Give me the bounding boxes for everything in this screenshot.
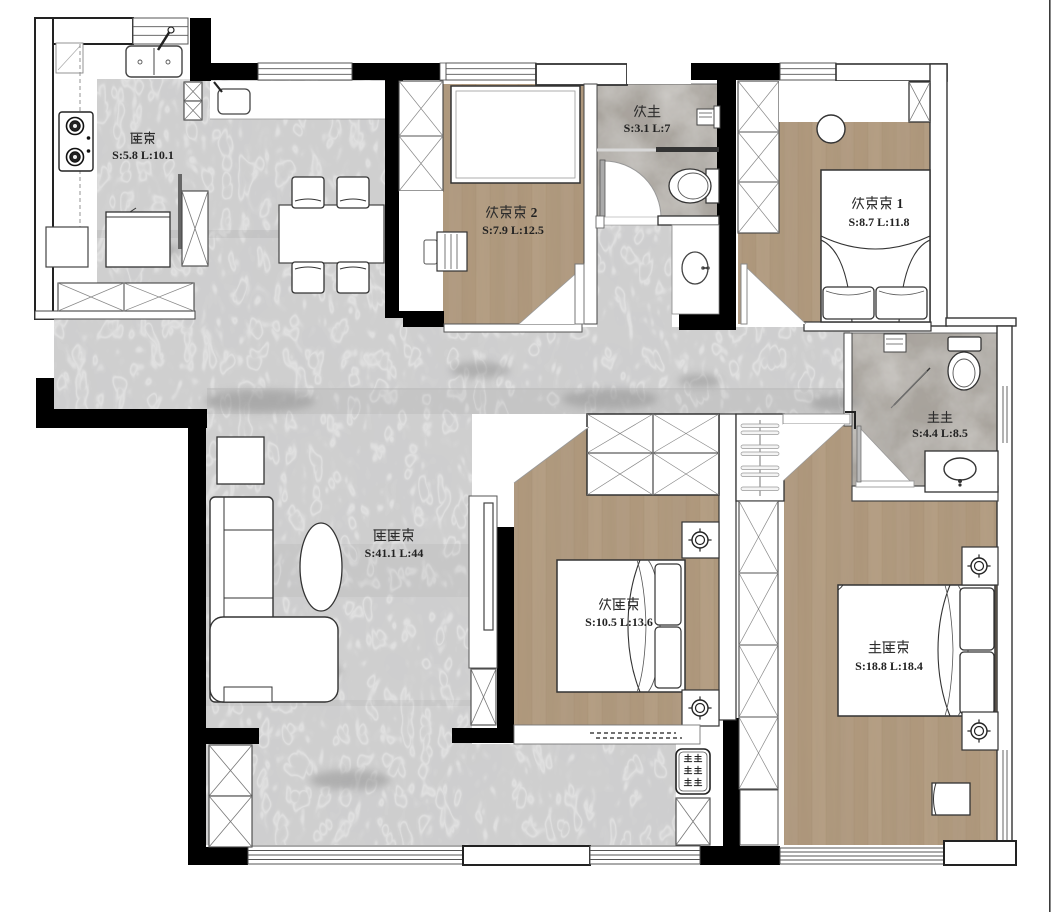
svg-text:S:3.1 L:7: S:3.1 L:7 [624, 121, 671, 135]
svg-text:S:41.1 L:44: S:41.1 L:44 [365, 546, 424, 560]
svg-text:S:7.9 L:12.5: S:7.9 L:12.5 [482, 223, 544, 237]
svg-text:2: 2 [531, 205, 538, 220]
svg-text:S:5.8 L:10.1: S:5.8 L:10.1 [112, 148, 174, 162]
svg-text:S:8.7 L:11.8: S:8.7 L:11.8 [848, 215, 909, 229]
svg-text:S:18.8 L:18.4: S:18.8 L:18.4 [855, 659, 923, 673]
svg-text:S:10.5 L:13.6: S:10.5 L:13.6 [585, 615, 653, 629]
svg-text:S:4.4 L:8.5: S:4.4 L:8.5 [912, 426, 968, 440]
svg-text:1: 1 [897, 196, 904, 211]
